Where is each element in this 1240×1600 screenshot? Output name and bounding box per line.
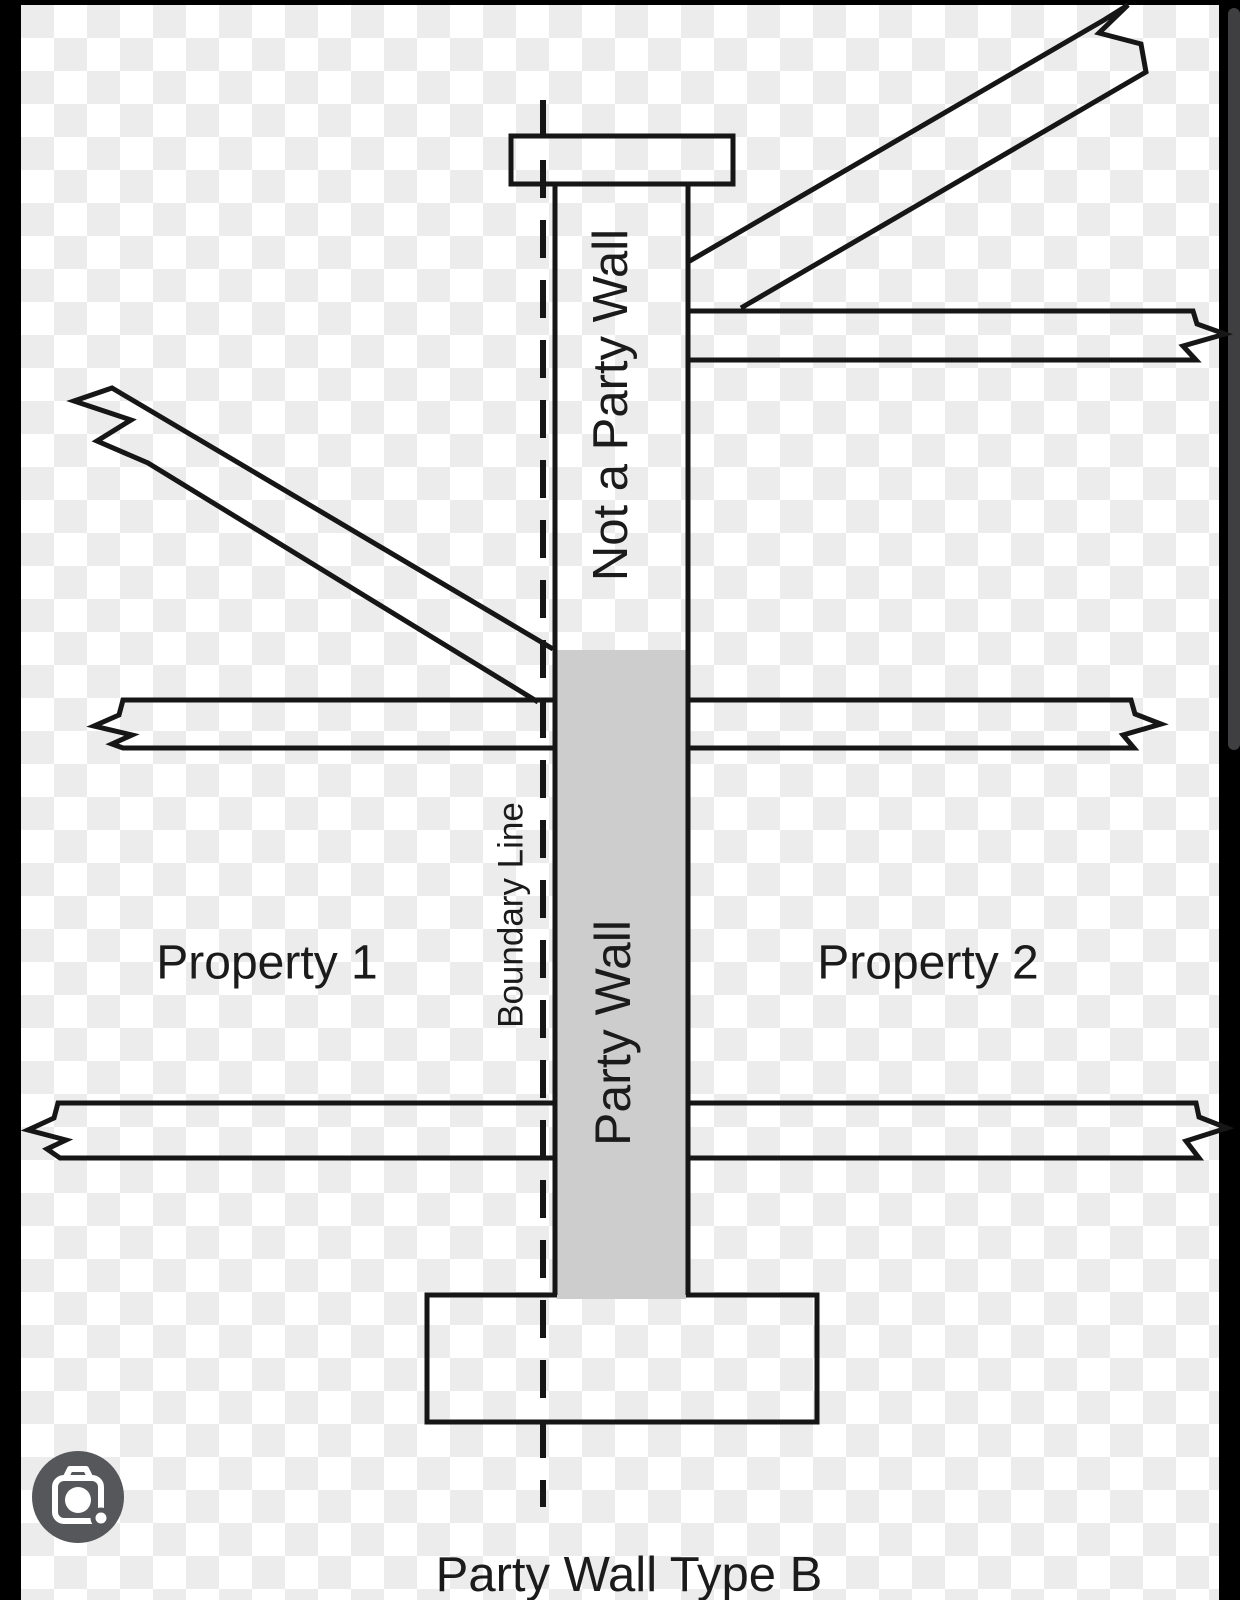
scrollbar-thumb[interactable]	[1228, 8, 1240, 750]
diagram-caption: Party Wall Type B	[436, 1548, 823, 1600]
image-viewer: Not a Party Wall Boundary Line Party Wal…	[0, 0, 1240, 1600]
label-property-2: Property 2	[817, 937, 1038, 990]
letterbox-bar-left	[0, 0, 21, 1600]
letterbox-bar-top	[0, 0, 1240, 5]
party-wall-diagram: Not a Party Wall Boundary Line Party Wal…	[0, 0, 1240, 1600]
label-party-wall: Party Wall	[585, 920, 641, 1146]
label-property-1: Property 1	[156, 937, 377, 990]
label-boundary-line: Boundary Line	[492, 802, 531, 1028]
label-not-a-party-wall: Not a Party Wall	[584, 229, 638, 581]
lens-search-button[interactable]	[32, 1451, 124, 1543]
